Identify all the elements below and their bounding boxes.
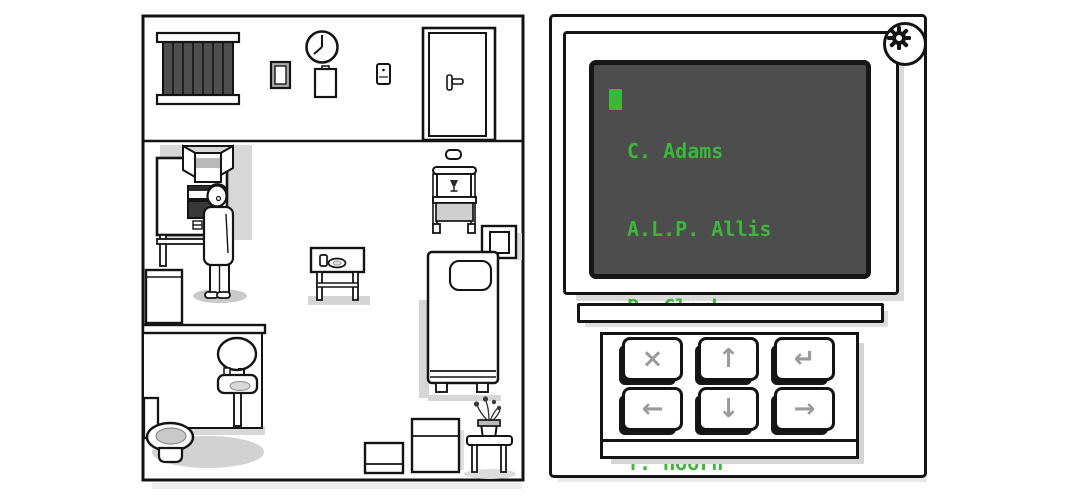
- bed[interactable]: [419, 252, 501, 401]
- settings-button[interactable]: [883, 22, 927, 66]
- wall-switch[interactable]: [377, 64, 390, 84]
- up-key[interactable]: ↑: [698, 337, 759, 381]
- room-shadow: [152, 483, 522, 489]
- down-key[interactable]: ↓: [698, 387, 759, 431]
- game-screen: C. Adams A.L.P. Allis P. Clark J. Gonzal…: [0, 0, 1080, 498]
- patient-list-item[interactable]: C. Adams: [627, 138, 772, 164]
- cardboard-box-large[interactable]: [412, 419, 464, 472]
- notepad[interactable]: [315, 66, 336, 97]
- keypad: × ↑ ↵ ← ↓ →: [600, 332, 859, 459]
- window-blinds[interactable]: [157, 33, 239, 104]
- enter-icon: ↵: [794, 344, 816, 374]
- arrow-left-icon: ←: [642, 394, 664, 424]
- patient-list-item[interactable]: A.L.P. Allis: [627, 216, 772, 242]
- gear-icon: [886, 25, 912, 51]
- enter-key[interactable]: ↵: [774, 337, 835, 381]
- arrow-right-icon: →: [794, 394, 816, 424]
- terminal-screen: C. Adams A.L.P. Allis P. Clark J. Gonzal…: [589, 60, 871, 279]
- handheld-device: C. Adams A.L.P. Allis P. Clark J. Gonzal…: [549, 14, 927, 478]
- wall-clock[interactable]: [307, 32, 338, 63]
- right-key[interactable]: →: [774, 387, 835, 431]
- cabinet-contents: [196, 158, 220, 168]
- mini-fridge[interactable]: [146, 270, 182, 323]
- arrow-up-icon: ↑: [718, 344, 740, 374]
- cancel-key[interactable]: ×: [622, 337, 683, 381]
- door[interactable]: [423, 28, 495, 140]
- picture-frame[interactable]: [271, 62, 290, 88]
- mirror[interactable]: [218, 338, 256, 370]
- pillow: [450, 261, 491, 290]
- monitor-base: [577, 303, 884, 323]
- cardboard-box-small[interactable]: [365, 443, 403, 473]
- cancel-icon: ×: [642, 344, 664, 374]
- bed-shadow-2: [428, 395, 501, 401]
- wall-vent[interactable]: [446, 150, 461, 159]
- arrow-down-icon: ↓: [718, 394, 740, 424]
- monitor: C. Adams A.L.P. Allis P. Clark J. Gonzal…: [563, 31, 899, 295]
- phone[interactable]: [320, 255, 327, 266]
- left-key[interactable]: ←: [622, 387, 683, 431]
- plate[interactable]: [329, 259, 346, 268]
- selection-cursor: [609, 89, 622, 110]
